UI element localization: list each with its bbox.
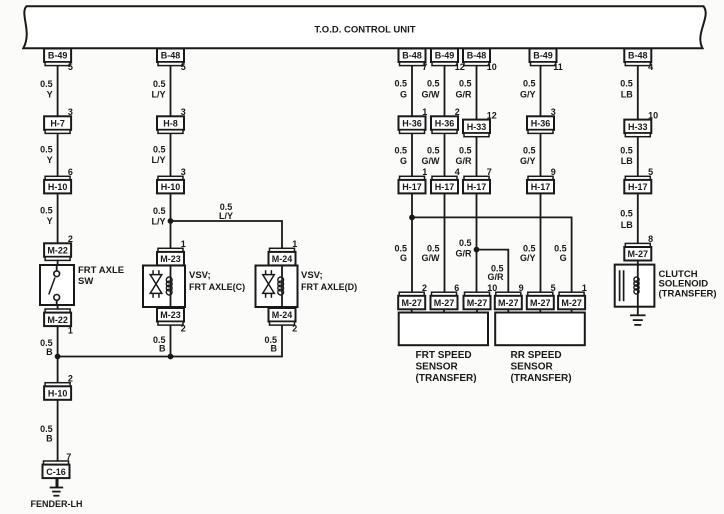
svg-text:H-17: H-17 — [402, 182, 422, 192]
svg-text:G/Y: G/Y — [520, 253, 536, 263]
svg-text:G/W: G/W — [422, 90, 441, 100]
svg-text:RR SPEED: RR SPEED — [511, 350, 562, 361]
svg-text:5: 5 — [181, 62, 186, 72]
svg-text:B-48: B-48 — [161, 51, 181, 61]
svg-text:H-33: H-33 — [467, 122, 487, 132]
svg-text:H-17: H-17 — [628, 182, 648, 192]
svg-text:0.5: 0.5 — [523, 244, 536, 254]
svg-text:VSV;: VSV; — [189, 270, 211, 281]
svg-text:G/W: G/W — [422, 253, 441, 263]
svg-text:1: 1 — [181, 239, 186, 249]
svg-text:L/Y: L/Y — [151, 155, 165, 165]
svg-text:H-33: H-33 — [628, 122, 648, 132]
svg-text:G/W: G/W — [422, 156, 441, 166]
svg-text:H-36: H-36 — [435, 118, 455, 128]
svg-text:0.5: 0.5 — [153, 79, 166, 89]
svg-text:1: 1 — [422, 107, 427, 117]
svg-text:G: G — [400, 156, 407, 166]
svg-text:0.5: 0.5 — [554, 244, 567, 254]
svg-text:0.5: 0.5 — [459, 146, 472, 156]
svg-text:5: 5 — [551, 283, 556, 293]
svg-text:0.5: 0.5 — [40, 206, 53, 216]
svg-text:H-8: H-8 — [163, 118, 178, 128]
svg-text:0.5: 0.5 — [394, 244, 407, 254]
svg-text:(TRANSFER): (TRANSFER) — [416, 373, 477, 384]
svg-text:M-27: M-27 — [498, 298, 519, 308]
svg-text:B-49: B-49 — [435, 51, 455, 61]
svg-text:8: 8 — [648, 234, 653, 244]
svg-text:LB: LB — [621, 156, 633, 166]
svg-text:0.5: 0.5 — [620, 146, 633, 156]
svg-text:9: 9 — [519, 283, 524, 293]
svg-text:H-10: H-10 — [48, 388, 68, 398]
svg-text:6: 6 — [68, 167, 73, 177]
svg-text:2: 2 — [455, 107, 460, 117]
svg-text:G/R: G/R — [455, 90, 472, 100]
svg-text:M-23: M-23 — [160, 310, 181, 320]
svg-text:G/R: G/R — [455, 156, 472, 166]
svg-text:FRT AXLE: FRT AXLE — [78, 265, 124, 276]
svg-text:H-36: H-36 — [402, 118, 422, 128]
svg-text:0.5: 0.5 — [523, 79, 536, 89]
svg-text:FRT SPEED: FRT SPEED — [416, 350, 472, 361]
svg-text:B: B — [159, 344, 166, 354]
svg-text:B: B — [271, 344, 278, 354]
svg-text:C-16: C-16 — [46, 467, 66, 477]
svg-text:G/R: G/R — [455, 249, 472, 259]
svg-text:(TRANSFER): (TRANSFER) — [511, 373, 572, 384]
svg-text:G: G — [560, 253, 567, 263]
svg-text:M-27: M-27 — [401, 298, 422, 308]
svg-text:T.O.D. CONTROL UNIT: T.O.D. CONTROL UNIT — [314, 25, 415, 36]
svg-text:0.5: 0.5 — [620, 209, 633, 219]
svg-text:M-27: M-27 — [530, 298, 551, 308]
svg-text:0.5: 0.5 — [427, 244, 440, 254]
svg-text:B-48: B-48 — [402, 51, 422, 61]
svg-text:H-17: H-17 — [467, 182, 487, 192]
svg-text:0.5: 0.5 — [40, 79, 53, 89]
svg-text:SENSOR: SENSOR — [511, 361, 554, 372]
svg-text:0.5: 0.5 — [620, 79, 633, 89]
svg-text:M-23: M-23 — [160, 254, 181, 264]
svg-text:H-17: H-17 — [435, 182, 455, 192]
svg-text:B-48: B-48 — [467, 51, 487, 61]
svg-text:LB: LB — [621, 90, 633, 100]
svg-text:G: G — [400, 253, 407, 263]
svg-text:10: 10 — [487, 62, 497, 72]
svg-text:M-22: M-22 — [47, 245, 68, 255]
svg-text:FRT AXLE(C): FRT AXLE(C) — [189, 282, 245, 292]
svg-text:0.5: 0.5 — [40, 424, 53, 434]
svg-text:M-27: M-27 — [561, 298, 582, 308]
svg-text:4: 4 — [648, 62, 653, 72]
svg-text:B-49: B-49 — [48, 51, 68, 61]
svg-text:H-10: H-10 — [48, 182, 68, 192]
svg-text:M-24: M-24 — [272, 310, 293, 320]
svg-text:0.5: 0.5 — [459, 238, 472, 248]
svg-text:L/Y: L/Y — [219, 211, 233, 221]
svg-text:G: G — [400, 90, 407, 100]
svg-text:5: 5 — [648, 167, 653, 177]
svg-text:12: 12 — [487, 110, 497, 120]
svg-text:3: 3 — [68, 107, 73, 117]
svg-text:G/R: G/R — [487, 272, 504, 282]
svg-text:0.5: 0.5 — [523, 146, 536, 156]
svg-text:0.5: 0.5 — [394, 79, 407, 89]
svg-text:0.5: 0.5 — [459, 79, 472, 89]
svg-text:9: 9 — [551, 167, 556, 177]
svg-text:Y: Y — [47, 216, 53, 226]
svg-text:SW: SW — [78, 276, 93, 287]
svg-text:M-24: M-24 — [272, 254, 293, 264]
svg-text:1: 1 — [68, 326, 73, 336]
svg-text:2: 2 — [68, 374, 73, 384]
svg-text:0.5: 0.5 — [153, 145, 166, 155]
svg-text:H-17: H-17 — [531, 182, 551, 192]
svg-text:3: 3 — [181, 107, 186, 117]
svg-text:11: 11 — [553, 62, 563, 72]
svg-text:B-49: B-49 — [533, 51, 553, 61]
svg-text:M-27: M-27 — [628, 249, 649, 259]
svg-text:2: 2 — [422, 283, 427, 293]
svg-text:(TRANSFER): (TRANSFER) — [659, 289, 717, 300]
svg-text:G/Y: G/Y — [520, 156, 536, 166]
svg-text:0.5: 0.5 — [427, 79, 440, 89]
svg-text:B: B — [46, 434, 53, 444]
svg-text:L/Y: L/Y — [151, 217, 165, 227]
svg-text:B-48: B-48 — [628, 51, 648, 61]
svg-text:1: 1 — [582, 283, 587, 293]
svg-text:7: 7 — [422, 62, 427, 72]
svg-text:M-22: M-22 — [47, 315, 68, 325]
svg-text:M-27: M-27 — [467, 298, 488, 308]
svg-text:FENDER-LH: FENDER-LH — [31, 499, 83, 509]
svg-text:L/Y: L/Y — [151, 90, 165, 100]
svg-text:3: 3 — [551, 107, 556, 117]
svg-text:2: 2 — [68, 234, 73, 244]
svg-text:0.5: 0.5 — [40, 145, 53, 155]
svg-text:0.5: 0.5 — [427, 146, 440, 156]
svg-text:6: 6 — [454, 283, 459, 293]
svg-text:H-7: H-7 — [50, 118, 65, 128]
svg-text:H-36: H-36 — [531, 118, 551, 128]
svg-text:LB: LB — [621, 220, 633, 230]
svg-text:FRT AXLE(D): FRT AXLE(D) — [301, 282, 357, 292]
svg-text:Y: Y — [47, 155, 53, 165]
svg-text:1: 1 — [292, 239, 297, 249]
svg-text:B: B — [46, 347, 53, 357]
svg-text:10: 10 — [648, 110, 658, 120]
svg-text:VSV;: VSV; — [301, 270, 323, 281]
svg-text:3: 3 — [181, 167, 186, 177]
svg-text:0.5: 0.5 — [394, 146, 407, 156]
svg-text:4: 4 — [455, 167, 460, 177]
svg-text:7: 7 — [487, 167, 492, 177]
svg-text:G/Y: G/Y — [520, 90, 536, 100]
svg-text:0.5: 0.5 — [153, 206, 166, 216]
svg-text:2: 2 — [181, 324, 186, 334]
svg-text:2: 2 — [292, 324, 297, 334]
svg-text:M-27: M-27 — [434, 298, 455, 308]
svg-text:SENSOR: SENSOR — [416, 361, 459, 372]
svg-text:7: 7 — [66, 452, 71, 462]
svg-text:Y: Y — [47, 90, 53, 100]
svg-text:1: 1 — [422, 167, 427, 177]
svg-text:5: 5 — [68, 62, 73, 72]
svg-text:H-10: H-10 — [161, 182, 181, 192]
